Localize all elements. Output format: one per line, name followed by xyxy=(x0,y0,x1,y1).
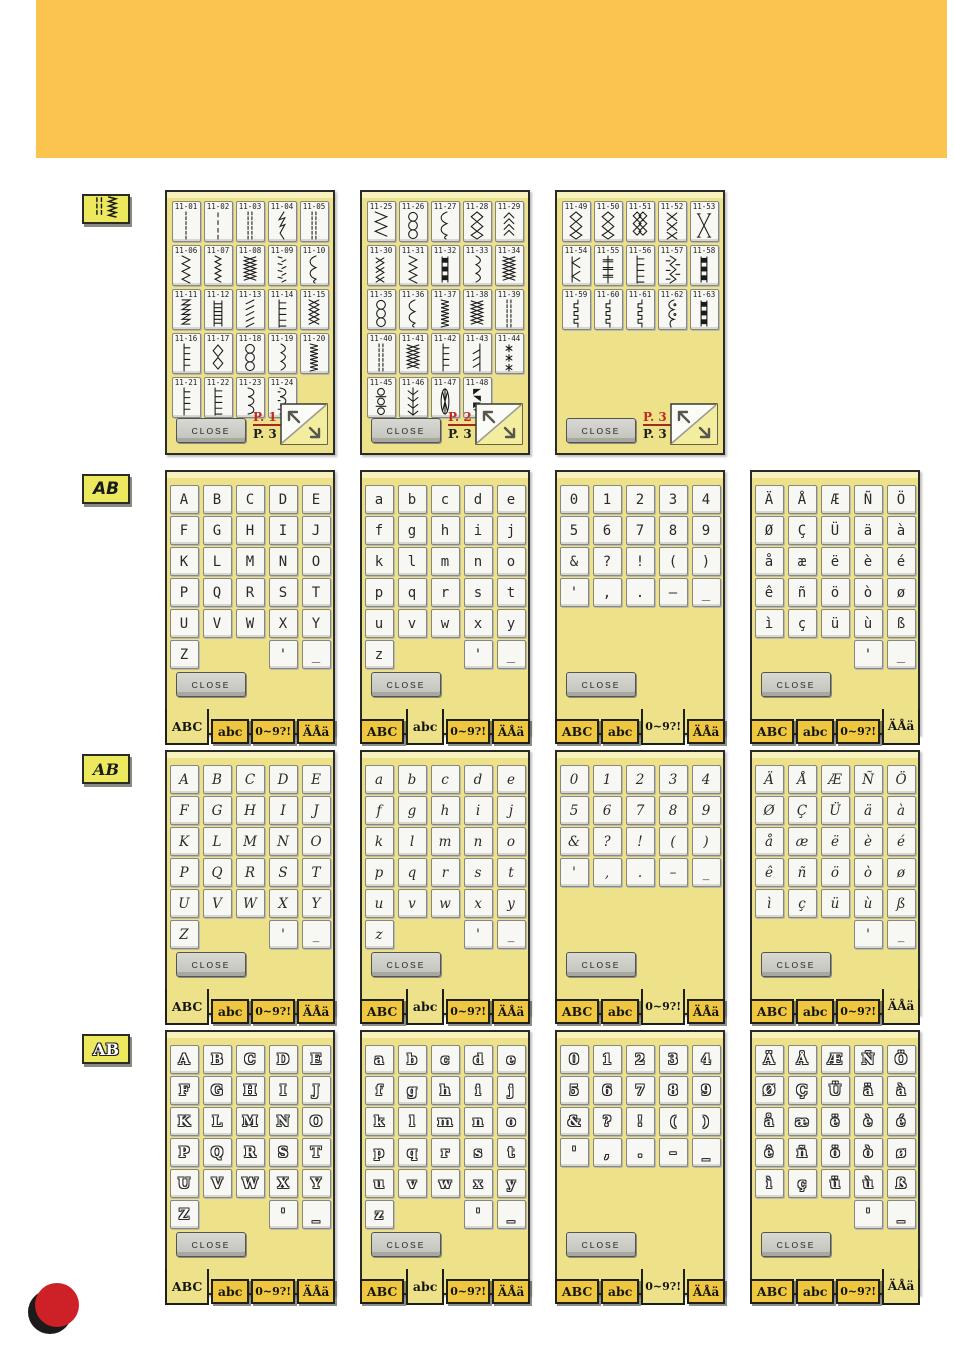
char-key[interactable]: y xyxy=(497,889,526,918)
stitch-key-11-06[interactable]: 11-06 xyxy=(172,245,201,286)
char-key[interactable]: h xyxy=(431,516,460,545)
char-key[interactable]: r xyxy=(431,858,460,887)
char-key[interactable]: K xyxy=(170,1107,199,1136)
char-key[interactable]: 8 xyxy=(659,796,688,825)
char-key[interactable]: O xyxy=(302,827,331,856)
close-button[interactable]: CLOSE xyxy=(761,672,831,697)
char-key[interactable]: ì xyxy=(755,889,784,918)
close-button[interactable]: CLOSE xyxy=(761,1232,831,1257)
char-key[interactable]: 1 xyxy=(593,765,622,794)
char-key[interactable]: ç xyxy=(788,609,817,638)
char-key[interactable]: k xyxy=(365,1107,394,1136)
close-button[interactable]: CLOSE xyxy=(761,952,831,977)
char-key[interactable]: Ç xyxy=(788,516,817,545)
tab-accents[interactable]: ÄÅä xyxy=(297,1279,335,1304)
tab-digits[interactable]: 0~9?! xyxy=(251,1279,295,1304)
char-key[interactable]: _ xyxy=(302,1200,331,1229)
char-key[interactable]: a xyxy=(365,765,394,794)
char-key[interactable]: v xyxy=(398,1169,427,1198)
char-key[interactable]: _ xyxy=(692,858,721,887)
char-key[interactable]: ù xyxy=(854,1169,883,1198)
char-key[interactable]: h xyxy=(431,796,460,825)
stitch-key-11-55[interactable]: 11-55 xyxy=(594,245,623,286)
char-key[interactable]: h xyxy=(431,1076,460,1105)
category-button-font-outline[interactable]: AB xyxy=(82,1034,130,1064)
char-key[interactable]: G xyxy=(203,796,232,825)
char-key[interactable]: Ñ xyxy=(854,1045,883,1074)
char-key[interactable]: ' xyxy=(464,640,493,669)
char-key[interactable]: n xyxy=(464,1107,493,1136)
char-key[interactable]: s xyxy=(464,858,493,887)
char-key[interactable]: N xyxy=(269,1107,298,1136)
stitch-key-11-13[interactable]: 11-13 xyxy=(236,289,265,330)
tab-lower[interactable]: abc xyxy=(796,1279,834,1304)
char-key[interactable]: – xyxy=(659,578,688,607)
char-key[interactable]: w xyxy=(431,1169,460,1198)
char-key[interactable]: ( xyxy=(659,1107,688,1136)
char-key[interactable]: m xyxy=(431,547,460,576)
char-key[interactable]: ñ xyxy=(788,858,817,887)
char-key[interactable]: b xyxy=(398,485,427,514)
char-key[interactable]: e xyxy=(497,1045,526,1074)
char-key[interactable]: ' xyxy=(464,1200,493,1229)
char-key[interactable]: i xyxy=(464,516,493,545)
char-key[interactable]: 6 xyxy=(593,516,622,545)
stitch-key-11-37[interactable]: 11-37 xyxy=(431,289,460,330)
char-key[interactable]: Z xyxy=(170,640,199,669)
stitch-key-11-46[interactable]: 11-46 xyxy=(399,377,428,418)
char-key[interactable]: J xyxy=(302,516,331,545)
char-key[interactable]: ' xyxy=(269,640,298,669)
char-key[interactable]: ? xyxy=(593,547,622,576)
char-key[interactable]: g xyxy=(398,796,427,825)
tab-upper[interactable]: ABC xyxy=(360,1279,404,1304)
stitch-key-11-16[interactable]: 11-16 xyxy=(172,333,201,374)
tab-digits[interactable]: 0~9?! xyxy=(251,999,295,1024)
char-key[interactable]: e xyxy=(497,765,526,794)
char-key[interactable]: Q xyxy=(203,858,232,887)
char-key[interactable]: _ xyxy=(302,920,331,949)
char-key[interactable]: Ö xyxy=(887,765,916,794)
char-key[interactable]: B xyxy=(203,485,232,514)
char-key[interactable]: è xyxy=(854,827,883,856)
char-key[interactable]: z xyxy=(365,920,394,949)
stitch-key-11-22[interactable]: 11-22 xyxy=(204,377,233,418)
char-key[interactable]: X xyxy=(269,609,298,638)
char-key[interactable]: ë xyxy=(821,1107,850,1136)
char-key[interactable]: N xyxy=(269,547,298,576)
char-key[interactable]: ) xyxy=(692,1107,721,1136)
stitch-key-11-60[interactable]: 11-60 xyxy=(594,289,623,330)
char-key[interactable]: ü xyxy=(821,609,850,638)
char-key[interactable]: ' xyxy=(560,858,589,887)
char-key[interactable]: Q xyxy=(203,1138,232,1167)
char-key[interactable]: O xyxy=(302,547,331,576)
char-key[interactable]: Ä xyxy=(755,485,784,514)
char-key[interactable]: J xyxy=(302,796,331,825)
char-key[interactable]: c xyxy=(431,485,460,514)
tab-accents[interactable]: ÄÅä xyxy=(687,1279,725,1304)
char-key[interactable]: ñ xyxy=(788,1138,817,1167)
char-key[interactable]: ê xyxy=(755,578,784,607)
char-key[interactable]: e xyxy=(497,485,526,514)
char-key[interactable]: Ä xyxy=(755,1045,784,1074)
char-key[interactable]: & xyxy=(560,1107,589,1136)
char-key[interactable]: L xyxy=(203,547,232,576)
tab-accents[interactable]: ÄÅä xyxy=(882,1269,920,1305)
char-key[interactable]: U xyxy=(170,889,199,918)
stitch-key-11-04[interactable]: 11-04 xyxy=(268,201,297,242)
char-key[interactable]: ö xyxy=(821,1138,850,1167)
char-key[interactable]: V xyxy=(203,1169,232,1198)
char-key[interactable]: & xyxy=(560,827,589,856)
char-key[interactable]: ù xyxy=(854,609,883,638)
char-key[interactable]: Ç xyxy=(788,1076,817,1105)
char-key[interactable]: é xyxy=(887,827,916,856)
close-button[interactable]: CLOSE xyxy=(176,672,246,697)
char-key[interactable]: R xyxy=(236,1138,265,1167)
char-key[interactable]: W xyxy=(236,609,265,638)
tab-digits[interactable]: 0~9?! xyxy=(641,709,685,745)
char-key[interactable]: x xyxy=(464,609,493,638)
tab-upper[interactable]: ABC xyxy=(555,719,599,744)
char-key[interactable]: æ xyxy=(788,547,817,576)
char-key[interactable]: j xyxy=(497,796,526,825)
char-key[interactable]: 4 xyxy=(692,765,721,794)
char-key[interactable]: 4 xyxy=(692,485,721,514)
char-key[interactable]: 7 xyxy=(626,796,655,825)
close-button[interactable]: CLOSE xyxy=(371,952,441,977)
char-key[interactable]: – xyxy=(659,858,688,887)
char-key[interactable]: V xyxy=(203,889,232,918)
tab-digits[interactable]: 0~9?! xyxy=(836,1279,880,1304)
close-button[interactable]: CLOSE xyxy=(566,952,636,977)
tab-lower[interactable]: abc xyxy=(796,999,834,1024)
char-key[interactable]: t xyxy=(497,1138,526,1167)
char-key[interactable]: 9 xyxy=(692,516,721,545)
char-key[interactable]: æ xyxy=(788,1107,817,1136)
char-key[interactable]: ç xyxy=(788,889,817,918)
char-key[interactable]: ' xyxy=(464,920,493,949)
page-corner-button[interactable] xyxy=(280,403,328,445)
char-key[interactable]: o xyxy=(497,1107,526,1136)
char-key[interactable]: . xyxy=(626,578,655,607)
char-key[interactable]: ) xyxy=(692,547,721,576)
char-key[interactable]: ë xyxy=(821,827,850,856)
char-key[interactable]: E xyxy=(302,485,331,514)
tab-lower[interactable]: abc xyxy=(796,719,834,744)
char-key[interactable]: à xyxy=(887,1076,916,1105)
char-key[interactable]: , xyxy=(593,858,622,887)
char-key[interactable]: f xyxy=(365,796,394,825)
tab-upper[interactable]: ABC xyxy=(165,989,209,1025)
close-button[interactable]: CLOSE xyxy=(176,952,246,977)
char-key[interactable]: ? xyxy=(593,827,622,856)
tab-upper[interactable]: ABC xyxy=(750,999,794,1024)
stitch-key-11-62[interactable]: 11-62 xyxy=(658,289,687,330)
char-key[interactable]: ' xyxy=(854,920,883,949)
stitch-key-11-49[interactable]: 11-49 xyxy=(562,201,591,242)
tab-accents[interactable]: ÄÅä xyxy=(882,709,920,745)
char-key[interactable]: ' xyxy=(269,1200,298,1229)
char-key[interactable]: Æ xyxy=(821,1045,850,1074)
char-key[interactable]: ' xyxy=(560,1138,589,1167)
char-key[interactable]: b xyxy=(398,765,427,794)
char-key[interactable]: X xyxy=(269,889,298,918)
char-key[interactable]: s xyxy=(464,1138,493,1167)
char-key[interactable]: ø xyxy=(887,858,916,887)
char-key[interactable]: 0 xyxy=(560,1045,589,1074)
char-key[interactable]: _ xyxy=(497,920,526,949)
char-key[interactable]: è xyxy=(854,1107,883,1136)
char-key[interactable]: c xyxy=(431,765,460,794)
stitch-key-11-07[interactable]: 11-07 xyxy=(204,245,233,286)
char-key[interactable]: y xyxy=(497,1169,526,1198)
char-key[interactable]: ù xyxy=(854,889,883,918)
stitch-key-11-02[interactable]: 11-02 xyxy=(204,201,233,242)
char-key[interactable]: n xyxy=(464,827,493,856)
char-key[interactable]: ! xyxy=(626,827,655,856)
char-key[interactable]: Ç xyxy=(788,796,817,825)
tab-upper[interactable]: ABC xyxy=(165,1269,209,1305)
char-key[interactable]: å xyxy=(755,1107,784,1136)
char-key[interactable]: 1 xyxy=(593,485,622,514)
tab-digits[interactable]: 0~9?! xyxy=(446,1279,490,1304)
close-button[interactable]: CLOSE xyxy=(566,1232,636,1257)
char-key[interactable]: W xyxy=(236,889,265,918)
char-key[interactable]: ø xyxy=(887,578,916,607)
char-key[interactable]: g xyxy=(398,516,427,545)
char-key[interactable]: ü xyxy=(821,889,850,918)
char-key[interactable]: 4 xyxy=(692,1045,721,1074)
char-key[interactable]: O xyxy=(302,1107,331,1136)
char-key[interactable]: ! xyxy=(626,547,655,576)
stitch-key-11-05[interactable]: 11-05 xyxy=(300,201,329,242)
char-key[interactable]: d xyxy=(464,485,493,514)
close-button[interactable]: CLOSE xyxy=(371,1232,441,1257)
tab-lower[interactable]: abc xyxy=(406,989,444,1025)
char-key[interactable]: ø xyxy=(887,1138,916,1167)
char-key[interactable]: 5 xyxy=(560,1076,589,1105)
char-key[interactable]: U xyxy=(170,1169,199,1198)
stitch-key-11-38[interactable]: 11-38 xyxy=(463,289,492,330)
stitch-key-11-34[interactable]: 11-34 xyxy=(495,245,524,286)
char-key[interactable]: ö xyxy=(821,578,850,607)
stitch-key-11-17[interactable]: 11-17 xyxy=(204,333,233,374)
tab-lower[interactable]: abc xyxy=(406,1269,444,1305)
char-key[interactable]: à xyxy=(887,516,916,545)
char-key[interactable]: i xyxy=(464,796,493,825)
char-key[interactable]: 7 xyxy=(626,516,655,545)
char-key[interactable]: W xyxy=(236,1169,265,1198)
char-key[interactable]: Ñ xyxy=(854,485,883,514)
char-key[interactable]: D xyxy=(269,485,298,514)
char-key[interactable]: x xyxy=(464,1169,493,1198)
char-key[interactable]: k xyxy=(365,827,394,856)
char-key[interactable]: p xyxy=(365,858,394,887)
char-key[interactable]: r xyxy=(431,578,460,607)
close-button[interactable]: CLOSE xyxy=(371,672,441,697)
char-key[interactable]: N xyxy=(269,827,298,856)
char-key[interactable]: E xyxy=(302,1045,331,1074)
stitch-key-11-35[interactable]: 11-35 xyxy=(367,289,396,330)
char-key[interactable]: T xyxy=(302,578,331,607)
char-key[interactable]: . xyxy=(626,858,655,887)
char-key[interactable]: Z xyxy=(170,1200,199,1229)
char-key[interactable]: Ø xyxy=(755,796,784,825)
char-key[interactable]: Ü xyxy=(821,1076,850,1105)
close-button[interactable]: CLOSE xyxy=(566,672,636,697)
char-key[interactable]: ß xyxy=(887,1169,916,1198)
char-key[interactable]: Ø xyxy=(755,516,784,545)
char-key[interactable]: Å xyxy=(788,485,817,514)
char-key[interactable]: , xyxy=(593,1138,622,1167)
char-key[interactable]: C xyxy=(236,1045,265,1074)
char-key[interactable]: _ xyxy=(887,640,916,669)
char-key[interactable]: A xyxy=(170,765,199,794)
char-key[interactable]: v xyxy=(398,609,427,638)
stitch-key-11-53[interactable]: 11-53 xyxy=(690,201,719,242)
stitch-key-11-29[interactable]: 11-29 xyxy=(495,201,524,242)
tab-digits[interactable]: 0~9?! xyxy=(446,719,490,744)
char-key[interactable]: U xyxy=(170,609,199,638)
char-key[interactable]: 1 xyxy=(593,1045,622,1074)
stitch-key-11-20[interactable]: 11-20 xyxy=(300,333,329,374)
char-key[interactable]: å xyxy=(755,547,784,576)
char-key[interactable]: ü xyxy=(821,1169,850,1198)
tab-upper[interactable]: ABC xyxy=(360,719,404,744)
tab-lower[interactable]: abc xyxy=(211,719,249,744)
char-key[interactable]: ì xyxy=(755,609,784,638)
char-key[interactable]: Ä xyxy=(755,765,784,794)
char-key[interactable]: R xyxy=(236,858,265,887)
char-key[interactable]: Ø xyxy=(755,1076,784,1105)
char-key[interactable]: f xyxy=(365,516,394,545)
char-key[interactable]: F xyxy=(170,516,199,545)
stitch-key-11-25[interactable]: 11-25 xyxy=(367,201,396,242)
char-key[interactable]: à xyxy=(887,796,916,825)
char-key[interactable]: l xyxy=(398,547,427,576)
char-key[interactable]: Ñ xyxy=(854,765,883,794)
stitch-key-11-12[interactable]: 11-12 xyxy=(204,289,233,330)
char-key[interactable]: D xyxy=(269,1045,298,1074)
char-key[interactable]: ò xyxy=(854,1138,883,1167)
char-key[interactable]: _ xyxy=(302,640,331,669)
char-key[interactable]: M xyxy=(236,1107,265,1136)
tab-upper[interactable]: ABC xyxy=(555,1279,599,1304)
stitch-key-11-32[interactable]: 11-32 xyxy=(431,245,460,286)
char-key[interactable]: T xyxy=(302,1138,331,1167)
tab-upper[interactable]: ABC xyxy=(750,1279,794,1304)
char-key[interactable]: 3 xyxy=(659,1045,688,1074)
close-button[interactable]: CLOSE xyxy=(176,418,246,443)
char-key[interactable]: _ xyxy=(887,1200,916,1229)
char-key[interactable]: , xyxy=(593,578,622,607)
char-key[interactable]: d xyxy=(464,1045,493,1074)
char-key[interactable]: ä xyxy=(854,796,883,825)
char-key[interactable]: R xyxy=(236,578,265,607)
char-key[interactable]: y xyxy=(497,609,526,638)
stitch-key-11-08[interactable]: 11-08 xyxy=(236,245,265,286)
tab-lower[interactable]: abc xyxy=(211,999,249,1024)
stitch-key-11-50[interactable]: 11-50 xyxy=(594,201,623,242)
char-key[interactable]: ç xyxy=(788,1169,817,1198)
char-key[interactable]: C xyxy=(236,485,265,514)
char-key[interactable]: p xyxy=(365,1138,394,1167)
stitch-key-11-26[interactable]: 11-26 xyxy=(399,201,428,242)
char-key[interactable]: Ö xyxy=(887,485,916,514)
char-key[interactable]: ä xyxy=(854,516,883,545)
char-key[interactable]: _ xyxy=(497,640,526,669)
char-key[interactable]: w xyxy=(431,609,460,638)
char-key[interactable]: S xyxy=(269,1138,298,1167)
char-key[interactable]: 9 xyxy=(692,1076,721,1105)
stitch-key-11-10[interactable]: 11-10 xyxy=(300,245,329,286)
char-key[interactable]: H xyxy=(236,1076,265,1105)
char-key[interactable]: j xyxy=(497,516,526,545)
char-key[interactable]: 0 xyxy=(560,765,589,794)
char-key[interactable]: 6 xyxy=(593,796,622,825)
char-key[interactable]: f xyxy=(365,1076,394,1105)
char-key[interactable]: ß xyxy=(887,609,916,638)
char-key[interactable]: a xyxy=(365,485,394,514)
char-key[interactable]: Ü xyxy=(821,516,850,545)
char-key[interactable]: d xyxy=(464,765,493,794)
close-button[interactable]: CLOSE xyxy=(176,1232,246,1257)
stitch-key-11-58[interactable]: 11-58 xyxy=(690,245,719,286)
char-key[interactable]: I xyxy=(269,516,298,545)
char-key[interactable]: A xyxy=(170,1045,199,1074)
char-key[interactable]: ! xyxy=(626,1107,655,1136)
char-key[interactable]: _ xyxy=(692,578,721,607)
tab-upper[interactable]: ABC xyxy=(360,999,404,1024)
category-button-font-script[interactable]: AB xyxy=(82,754,130,784)
char-key[interactable]: ' xyxy=(560,578,589,607)
char-key[interactable]: ' xyxy=(854,1200,883,1229)
char-key[interactable]: g xyxy=(398,1076,427,1105)
char-key[interactable]: å xyxy=(755,827,784,856)
char-key[interactable]: l xyxy=(398,827,427,856)
stitch-key-11-21[interactable]: 11-21 xyxy=(172,377,201,418)
char-key[interactable]: ê xyxy=(755,858,784,887)
char-key[interactable]: ) xyxy=(692,827,721,856)
char-key[interactable]: ? xyxy=(593,1107,622,1136)
char-key[interactable]: B xyxy=(203,1045,232,1074)
tab-digits[interactable]: 0~9?! xyxy=(836,999,880,1024)
char-key[interactable]: L xyxy=(203,1107,232,1136)
char-key[interactable]: 5 xyxy=(560,796,589,825)
stitch-key-11-56[interactable]: 11-56 xyxy=(626,245,655,286)
stitch-key-11-42[interactable]: 11-42 xyxy=(431,333,460,374)
char-key[interactable]: F xyxy=(170,796,199,825)
char-key[interactable]: I xyxy=(269,796,298,825)
char-key[interactable]: K xyxy=(170,547,199,576)
tab-digits[interactable]: 0~9?! xyxy=(251,719,295,744)
char-key[interactable]: m xyxy=(431,827,460,856)
char-key[interactable]: Q xyxy=(203,578,232,607)
char-key[interactable]: S xyxy=(269,578,298,607)
page-corner-button[interactable] xyxy=(670,403,718,445)
char-key[interactable]: o xyxy=(497,827,526,856)
tab-accents[interactable]: ÄÅä xyxy=(882,989,920,1025)
char-key[interactable]: ò xyxy=(854,578,883,607)
char-key[interactable]: T xyxy=(302,858,331,887)
char-key[interactable]: q xyxy=(398,578,427,607)
char-key[interactable]: ò xyxy=(854,858,883,887)
stitch-key-11-51[interactable]: 11-51 xyxy=(626,201,655,242)
char-key[interactable]: K xyxy=(170,827,199,856)
char-key[interactable]: 2 xyxy=(626,765,655,794)
